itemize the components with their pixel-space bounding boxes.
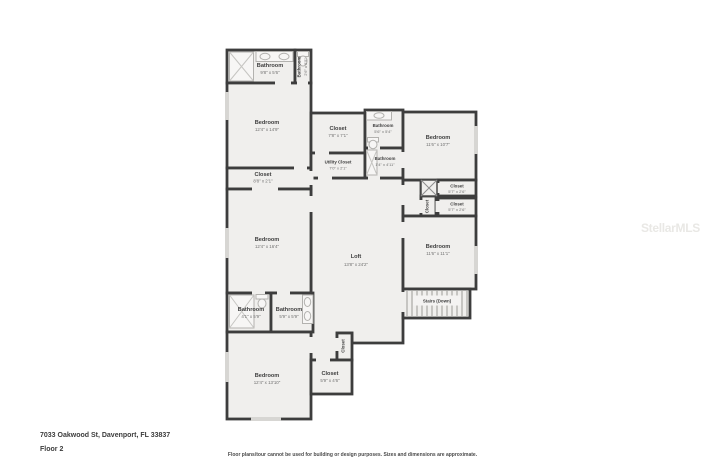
room-closet-bottom: [311, 360, 352, 394]
room-label: Bedroom: [255, 120, 280, 126]
room-label: Loft: [351, 254, 362, 260]
room-dims: 7'0" x 2'1": [329, 166, 347, 171]
room-dims: 8'8" x 2'1": [253, 179, 273, 184]
room-dims: 4'1" x 5'9": [241, 314, 261, 319]
room-label: Closet: [425, 199, 430, 213]
room-label: Bathroom: [373, 123, 394, 128]
room-dims: 7'8" x 7'1": [328, 133, 348, 138]
sink-bathroom-hall: [367, 112, 392, 121]
stellar-mls-watermark: StellarMLS: [600, 221, 700, 235]
room-label: Bedroom: [426, 135, 451, 141]
room-dims: 5'7" x 2'6": [448, 207, 466, 212]
room-dims: 5'9" x 4'6": [320, 378, 340, 383]
room-label: Closet: [321, 371, 338, 377]
room-label: Bedroom: [255, 237, 280, 243]
room-loft: [311, 178, 403, 360]
room-dims: 9'8" x 5'6": [260, 70, 280, 75]
sink-counter-bathroom-bottom-right: [303, 295, 314, 324]
room-dims: 11'6" x 11'1": [426, 251, 450, 256]
shower-master-bath: [230, 52, 254, 81]
room-label: Bathroom: [276, 307, 302, 313]
room-label: Bathroom: [297, 57, 302, 78]
room-label: Bedroom: [255, 373, 280, 379]
room-dims: 11'6" x 10'7": [426, 142, 450, 147]
room-label: Utility Closet: [325, 160, 352, 165]
address-text: 7033 Oakwood St, Davenport, FL 33837: [40, 432, 170, 439]
disclaimer-text: Floor plans/tour cannot be used for buil…: [0, 452, 705, 458]
room-label: Closet: [341, 339, 346, 353]
room-label: Closet: [450, 184, 464, 189]
room-dims: 5'9" x 5'9": [279, 314, 299, 319]
room-label: Bedroom: [426, 244, 451, 250]
room-dims: 13'8" x 24'2": [344, 262, 369, 267]
room-label: Bathroom: [238, 307, 264, 313]
room-dims: 12'4" x 14'9": [255, 127, 280, 132]
room-label: Closet: [329, 126, 346, 132]
room-label: Bathroom: [375, 156, 396, 161]
room-dims: 2'6" x 5'5": [303, 58, 308, 76]
sink-counter-master-bath: [256, 52, 293, 62]
room-dims: 5'7" x 2'6": [448, 189, 466, 194]
floor-plan-page: Bathroom 9'8" x 5'6" Bathroom 2'6" x 5'5…: [0, 0, 705, 469]
chase-hatched-box: [421, 180, 437, 196]
room-dims: 5'6" x 5'4": [374, 129, 392, 134]
room-label: Closet: [450, 202, 464, 207]
room-dims: 1'4" x 4'11": [375, 162, 395, 167]
room-label: Closet: [254, 172, 271, 178]
room-label: Bathroom: [257, 63, 283, 69]
room-hall-right: [403, 180, 421, 216]
room-dims: 12'4" x 13'10": [254, 380, 281, 385]
room-label: Stairs (Down): [423, 299, 452, 304]
room-dims: 12'4" x 16'4": [255, 244, 280, 249]
